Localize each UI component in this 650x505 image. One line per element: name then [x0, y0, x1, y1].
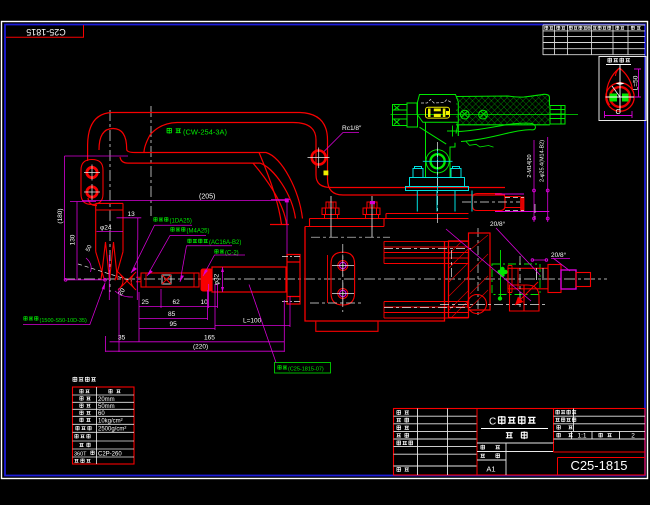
svg-text:10kg/cm²: 10kg/cm²	[98, 419, 123, 425]
svg-text:2-φ25.4(M14-B2): 2-φ25.4(M14-B2)	[540, 140, 546, 182]
svg-text:2: 2	[631, 433, 635, 440]
svg-text:L=100: L=100	[243, 318, 262, 325]
svg-text:2-M14|20: 2-M14|20	[527, 154, 533, 177]
svg-text:(1DA25): (1DA25)	[170, 218, 192, 224]
svg-text:20mm: 20mm	[98, 397, 115, 403]
svg-text:(C-2): (C-2)	[225, 250, 239, 256]
svg-text:62: 62	[173, 299, 181, 306]
svg-text:C: C	[615, 109, 620, 116]
svg-text:10: 10	[201, 299, 209, 306]
svg-text:20/8°: 20/8°	[490, 220, 506, 228]
svg-text:(AC16A-B2): (AC16A-B2)	[209, 240, 241, 246]
svg-text:A1: A1	[486, 465, 495, 474]
svg-text:C25-1815: C25-1815	[570, 458, 627, 473]
svg-text:50mm: 50mm	[98, 404, 115, 410]
svg-text:(M4A25): (M4A25)	[187, 228, 210, 234]
svg-text:(180): (180)	[57, 208, 64, 223]
svg-text:2500g/cm²: 2500g/cm²	[98, 427, 126, 433]
svg-text:(205): (205)	[199, 194, 215, 201]
svg-text:Rc1/8″: Rc1/8″	[342, 125, 362, 132]
svg-text:95: 95	[170, 321, 178, 328]
svg-text:165: 165	[204, 334, 215, 341]
svg-text:φ32: φ32	[214, 273, 221, 285]
svg-text:1:1: 1:1	[577, 433, 586, 440]
svg-text:(220): (220)	[193, 344, 208, 351]
svg-text:360T: 360T	[74, 451, 87, 457]
svg-text:130: 130	[70, 234, 77, 245]
svg-text:(1500-S50-10D-35): (1500-S50-10D-35)	[40, 318, 88, 324]
svg-text:25: 25	[142, 299, 150, 306]
svg-text:20/8°: 20/8°	[551, 251, 567, 259]
svg-text:C: C	[489, 417, 496, 428]
svg-text:(CW-254-3A): (CW-254-3A)	[183, 128, 228, 137]
svg-text:(C25-1815-07): (C25-1815-07)	[288, 366, 324, 372]
svg-text:85: 85	[168, 311, 176, 318]
svg-text:13: 13	[128, 211, 136, 218]
svg-text:60: 60	[98, 411, 105, 417]
svg-text:φ24: φ24	[100, 225, 112, 232]
svg-text:C25-1815: C25-1815	[26, 27, 66, 37]
svg-text:C2P-260: C2P-260	[98, 451, 122, 457]
svg-text:35: 35	[118, 334, 126, 341]
svg-text:L=50: L=50	[633, 75, 640, 90]
